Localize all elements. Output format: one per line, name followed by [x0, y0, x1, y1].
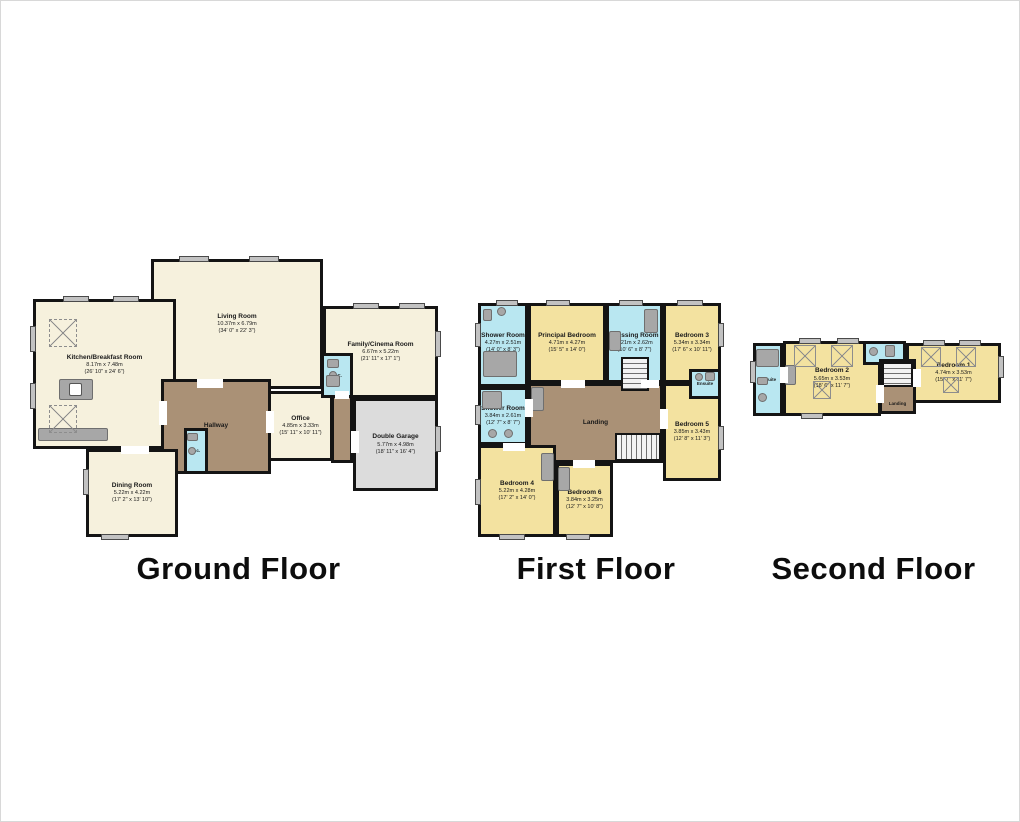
restricted-height-marker — [956, 347, 976, 367]
door-opening — [780, 367, 788, 383]
basin-fixture — [488, 429, 497, 438]
room-name: Dining Room — [112, 482, 152, 490]
window — [435, 426, 441, 452]
door-opening — [159, 401, 167, 425]
room-dims-metric: 5.77m x 4.98m — [377, 442, 413, 449]
toilet-fixture — [483, 309, 492, 321]
window — [475, 479, 481, 505]
window — [179, 256, 209, 262]
skylight-marker — [49, 405, 77, 433]
door-opening — [525, 399, 533, 417]
room-name: Landing — [889, 401, 907, 407]
room-dims-imperial: (15' 11" x 10' 11") — [279, 430, 321, 437]
wardrobe-fixture — [644, 309, 658, 333]
room-name: Principal Bedroom — [538, 332, 596, 340]
window — [113, 296, 139, 302]
cabinet-fixture — [326, 375, 340, 387]
room-dims-metric: 4.85m x 3.33m — [282, 423, 318, 430]
toilet-fixture — [885, 345, 895, 357]
restricted-height-marker — [813, 381, 831, 399]
stairs — [882, 362, 913, 387]
door-opening — [573, 460, 595, 468]
room-dims-metric: 5.22m x 4.22m — [114, 490, 150, 497]
basin-fixture — [695, 373, 703, 381]
room-name: Bedroom 4 — [500, 480, 534, 488]
window — [249, 256, 279, 262]
window — [30, 383, 36, 409]
room-name: Bedroom 6 — [568, 489, 602, 497]
window — [496, 300, 518, 306]
room-name: Bedroom 2 — [815, 367, 849, 375]
basin-fixture — [757, 377, 768, 385]
room-dims-metric: 3.84m x 3.25m — [566, 497, 602, 504]
room-dims-imperial: (21' 11" x 17' 1") — [361, 356, 401, 363]
room-name: Family/Cinema Room — [347, 341, 413, 349]
room-name: Living Room — [217, 313, 256, 321]
room-name: Bedroom 5 — [675, 421, 709, 429]
window — [353, 303, 379, 309]
room-name: Shower Room — [481, 332, 525, 340]
window — [475, 405, 481, 425]
window — [750, 361, 756, 383]
window — [399, 303, 425, 309]
window — [101, 534, 129, 540]
window — [959, 340, 981, 346]
stairs — [615, 433, 661, 461]
room-dims-imperial: (17' 2" x 14' 0") — [499, 495, 536, 502]
room-dims-metric: 3.85m x 3.43m — [674, 429, 710, 436]
room-office: Office 4.85m x 3.33m (15' 11" x 10' 11") — [268, 391, 333, 461]
first-floor-title: First Floor — [496, 553, 696, 584]
room-dims-metric: 4.27m x 2.51m — [485, 340, 521, 347]
window — [799, 338, 821, 344]
restricted-height-marker — [921, 347, 941, 367]
ground-floor-title: Ground Floor — [111, 553, 366, 584]
door-opening — [660, 409, 668, 429]
room-dims-imperial: (17' 6" x 10' 11") — [672, 347, 712, 354]
door-opening — [561, 380, 585, 388]
hob-fixture — [69, 383, 82, 396]
floorplan-canvas: Living Room 10.37m x 6.79m (34' 0" x 22'… — [0, 0, 1020, 822]
room-dims-imperial: (12' 8" x 11' 3") — [674, 436, 710, 443]
shower-tray — [756, 349, 779, 367]
window — [475, 323, 481, 347]
room-name: Ensuite — [697, 381, 713, 387]
window — [677, 300, 703, 306]
room-name: Bedroom 3 — [675, 332, 709, 340]
door-opening — [335, 391, 349, 399]
room-dims-imperial: (26' 10" x 24' 6") — [85, 369, 125, 376]
door-opening — [197, 379, 223, 388]
room-living-room: Living Room 10.37m x 6.79m (34' 0" x 22'… — [151, 259, 323, 389]
window — [718, 426, 724, 450]
basin-fixture — [327, 359, 339, 368]
door-opening — [876, 385, 884, 403]
room-dims-metric: 3.84m x 2.61m — [485, 413, 521, 420]
shower-tray — [483, 351, 517, 377]
window — [718, 323, 724, 347]
basin-fixture — [497, 307, 506, 316]
room-double-garage: Double Garage 5.77m x 4.98m (18' 11" x 1… — [353, 398, 438, 491]
room-dims-metric: 10.37m x 6.79m — [217, 321, 256, 328]
window — [499, 534, 525, 540]
wardrobe-fixture — [609, 331, 621, 351]
room-rear-hall — [331, 391, 353, 463]
room-name: Kitchen/Breakfast Room — [67, 354, 143, 362]
window — [83, 469, 89, 495]
window — [63, 296, 89, 302]
room-dims-metric: 8.17m x 7.48m — [86, 362, 122, 369]
restricted-height-marker — [831, 345, 853, 367]
room-dims-metric: 5.34m x 3.34m — [674, 340, 710, 347]
room-dining-room: Dining Room 5.22m x 4.22m (17' 2" x 13' … — [86, 449, 178, 537]
room-dims-imperial: (15' 5" x 14' 0") — [549, 347, 586, 354]
room-name: Office — [291, 415, 309, 423]
room-name: Landing — [583, 419, 608, 427]
room-dims-imperial: (12' 7" x 8' 7") — [486, 420, 520, 427]
door-opening — [266, 411, 274, 433]
door-opening — [503, 443, 525, 451]
wardrobe-fixture — [558, 467, 570, 491]
skylight-marker — [49, 319, 77, 347]
basin-fixture — [869, 347, 878, 356]
window — [923, 340, 945, 346]
basin-fixture — [187, 433, 198, 441]
toilet-fixture — [705, 372, 715, 381]
window — [30, 326, 36, 352]
restricted-height-marker — [943, 377, 959, 393]
window — [837, 338, 859, 344]
window — [566, 534, 590, 540]
door-opening — [351, 431, 359, 453]
room-dims-metric: 4.71m x 4.27m — [549, 340, 585, 347]
second-floor-title: Second Floor — [761, 553, 986, 584]
room-principal-bedroom: Principal Bedroom 4.71m x 4.27m (15' 5" … — [528, 303, 606, 383]
door-opening — [641, 380, 659, 388]
restricted-height-marker — [794, 345, 816, 367]
toilet-fixture — [758, 393, 767, 402]
room-dims-imperial: (18' 11" x 16' 4") — [376, 449, 416, 456]
room-dims-imperial: (12' 7" x 10' 8") — [566, 504, 603, 511]
window — [619, 300, 643, 306]
room-dims-metric: 3.21m x 2.62m — [616, 340, 652, 347]
wardrobe-fixture — [541, 453, 554, 481]
room-dims-metric: 5.22m x 4.28m — [499, 488, 535, 495]
room-name: Double Garage — [372, 433, 418, 441]
window — [801, 413, 823, 419]
toilet-fixture — [188, 447, 196, 455]
room-dims-metric: 6.67m x 5.22m — [362, 349, 398, 356]
room-dims-imperial: (17' 2" x 13' 10") — [112, 497, 152, 504]
door-opening — [121, 446, 149, 454]
door-opening — [913, 369, 921, 387]
room-dims-imperial: (34' 0" x 22' 3") — [219, 328, 256, 335]
room-dims-imperial: (10' 6" x 8' 7") — [618, 347, 652, 354]
window — [435, 331, 441, 357]
shower-tray — [482, 391, 502, 409]
window — [998, 356, 1004, 378]
window — [546, 300, 570, 306]
basin-fixture — [504, 429, 513, 438]
